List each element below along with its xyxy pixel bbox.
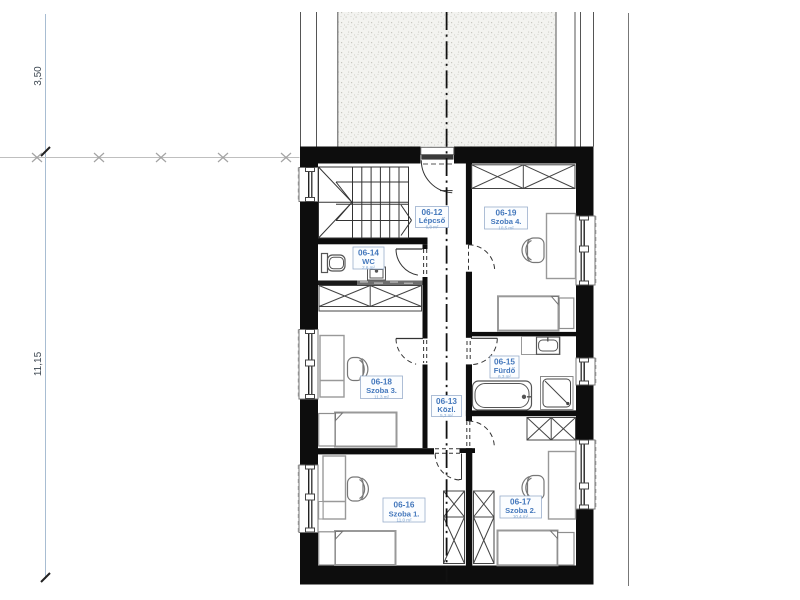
- svg-text:6,3 m²: 6,3 m²: [498, 374, 511, 379]
- svg-text:11,3 m²: 11,3 m²: [374, 395, 389, 400]
- svg-text:2,6 m²: 2,6 m²: [362, 265, 375, 270]
- svg-text:11,0 m²: 11,0 m²: [397, 518, 412, 523]
- svg-text:3,50: 3,50: [33, 66, 44, 86]
- svg-text:06-16: 06-16: [394, 501, 415, 510]
- svg-text:11,15: 11,15: [33, 351, 44, 376]
- svg-text:10,4 m²: 10,4 m²: [513, 514, 529, 519]
- svg-text:5,3 m²: 5,3 m²: [440, 413, 453, 418]
- svg-text:6,8 m²: 6,8 m²: [426, 225, 439, 230]
- svg-text:10,5 m²: 10,5 m²: [498, 226, 514, 231]
